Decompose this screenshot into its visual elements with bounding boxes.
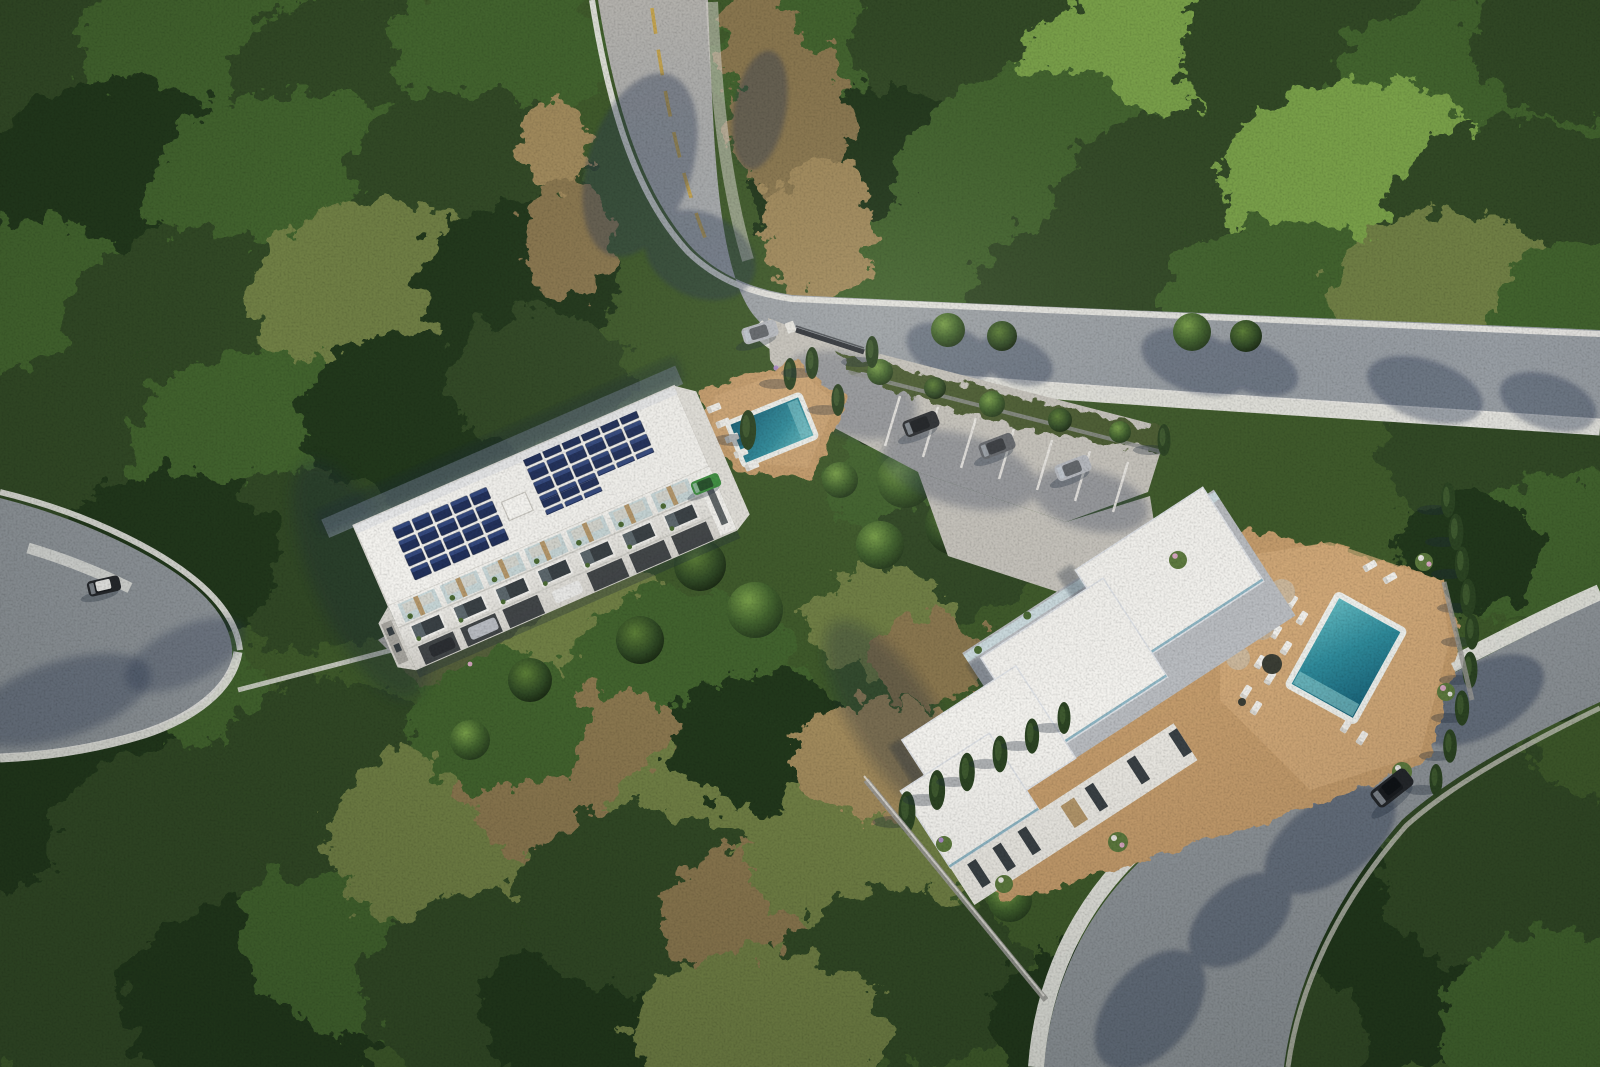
vignette xyxy=(0,0,1600,1067)
aerial-development-render: Aerial 3D architectural rendering of a h… xyxy=(0,0,1600,1067)
aerial-render-stage: Aerial 3D architectural rendering of a h… xyxy=(0,0,1600,1067)
